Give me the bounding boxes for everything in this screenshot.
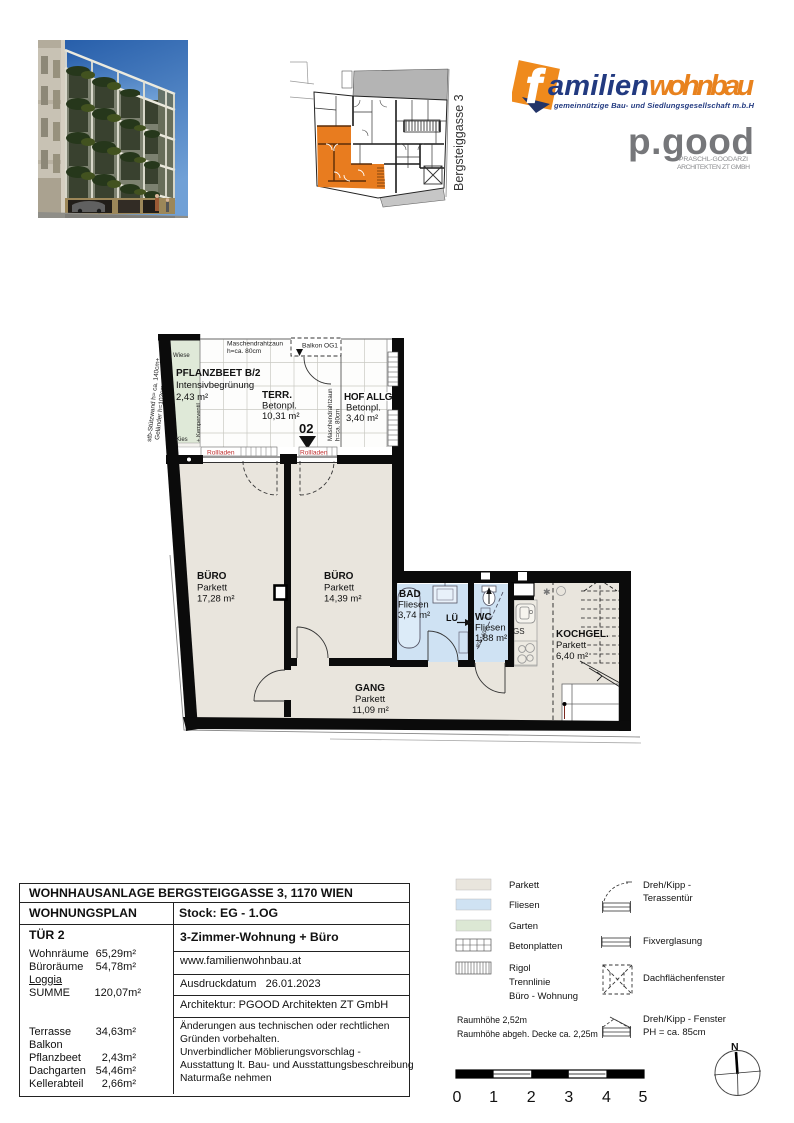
svg-text:PFLANZBEET B/2: PFLANZBEET B/2: [176, 368, 261, 379]
svg-text:Raumhöhe abgeh. Decke ca. 2,25: Raumhöhe abgeh. Decke ca. 2,25m: [457, 1029, 598, 1039]
svg-text:Büro - Wohnung: Büro - Wohnung: [509, 991, 578, 1002]
svg-text:1,88 m²: 1,88 m²: [475, 633, 507, 644]
svg-text:h=ca. 80cm: h=ca. 80cm: [335, 409, 342, 441]
svg-text:Garten: Garten: [509, 921, 538, 932]
svg-text:Parkett: Parkett: [197, 583, 227, 594]
svg-text:Rollladen: Rollladen: [300, 450, 328, 457]
svg-text:WC: WC: [475, 612, 492, 623]
svg-text:3,40 m²: 3,40 m²: [346, 413, 378, 424]
svg-text:5: 5: [639, 1089, 648, 1106]
svg-text:Betonpl.: Betonpl.: [346, 403, 381, 414]
svg-text:h=ca. 80cm: h=ca. 80cm: [227, 348, 262, 355]
svg-text:Betonplatten: Betonplatten: [509, 941, 562, 952]
svg-text:6,40 m²: 6,40 m²: [556, 651, 588, 662]
svg-text:2: 2: [527, 1089, 536, 1106]
svg-text:Fliesen: Fliesen: [475, 623, 506, 634]
svg-text:LÜ: LÜ: [446, 613, 458, 623]
svg-text:BAD: BAD: [399, 589, 421, 600]
svg-text:Fliesen: Fliesen: [398, 600, 429, 611]
svg-text:Parkett: Parkett: [355, 694, 385, 705]
svg-text:02: 02: [299, 421, 313, 436]
svg-text:Kies: Kies: [176, 437, 188, 443]
svg-text:amilienwohnbau: amilienwohnbau: [548, 70, 754, 102]
svg-text:1: 1: [489, 1089, 498, 1106]
svg-text:+ Kemperventil: + Kemperventil: [196, 403, 202, 442]
svg-text:Fixverglasung: Fixverglasung: [643, 936, 702, 947]
svg-text:11,09 m²: 11,09 m²: [352, 705, 389, 716]
svg-text:Balkon OG1: Balkon OG1: [302, 343, 338, 350]
svg-text:Terassentür: Terassentür: [643, 893, 693, 904]
svg-text:Maschendrahtzaun: Maschendrahtzaun: [327, 388, 334, 441]
svg-text:Dachflächenfenster: Dachflächenfenster: [643, 973, 725, 984]
svg-text:Dreh/Kipp -: Dreh/Kipp -: [643, 880, 691, 891]
svg-text:✱: ✱: [543, 587, 551, 597]
svg-text:GANG: GANG: [355, 683, 385, 694]
svg-text:Trennlinie: Trennlinie: [509, 977, 550, 988]
svg-text:Rollladen: Rollladen: [207, 450, 235, 457]
svg-text:Fliesen: Fliesen: [509, 900, 540, 911]
svg-text:10,31 m²: 10,31 m²: [262, 411, 300, 422]
svg-text:14,39 m²: 14,39 m²: [324, 594, 362, 605]
svg-text:Betonpl.: Betonpl.: [262, 401, 297, 412]
svg-text:Intensivbegrünung: Intensivbegrünung: [176, 380, 254, 391]
svg-text:Wiese: Wiese: [173, 353, 190, 359]
svg-text:17,28 m²: 17,28 m²: [197, 594, 235, 605]
svg-text:0: 0: [453, 1089, 462, 1106]
svg-text:Rigol: Rigol: [509, 963, 531, 974]
svg-text:4: 4: [602, 1089, 611, 1106]
svg-text:3,74 m²: 3,74 m²: [398, 610, 430, 621]
svg-text:HOF ALLG.: HOF ALLG.: [344, 392, 395, 403]
svg-text:Parkett: Parkett: [556, 640, 586, 651]
svg-text:GS: GS: [513, 627, 525, 636]
svg-text:TERR.: TERR.: [262, 390, 292, 401]
svg-text:N: N: [731, 1041, 739, 1053]
svg-text:Maschendrahtzaun: Maschendrahtzaun: [227, 341, 283, 348]
svg-text:gemeinnützige Bau- und Siedlun: gemeinnützige Bau- und Siedlungsgesellsc…: [553, 101, 755, 110]
svg-text:Dreh/Kipp - Fenster: Dreh/Kipp - Fenster: [643, 1014, 726, 1025]
svg-text:ARCHITEKTEN ZT GMBH: ARCHITEKTEN ZT GMBH: [677, 164, 750, 171]
svg-text:3: 3: [564, 1089, 573, 1106]
svg-text:Parkett: Parkett: [509, 880, 539, 891]
svg-text:2,43 m²: 2,43 m²: [176, 392, 208, 403]
svg-text:PH = ca. 85cm: PH = ca. 85cm: [643, 1027, 706, 1038]
svg-text:BÜRO: BÜRO: [197, 569, 227, 582]
svg-text:PRASCHL-GOODARZI: PRASCHL-GOODARZI: [679, 156, 748, 163]
svg-text:Raumhöhe 2,52m: Raumhöhe 2,52m: [457, 1015, 527, 1025]
svg-text:KOCHGEL.: KOCHGEL.: [556, 629, 609, 640]
svg-text:BÜRO: BÜRO: [324, 569, 354, 582]
svg-text:Parkett: Parkett: [324, 583, 354, 594]
